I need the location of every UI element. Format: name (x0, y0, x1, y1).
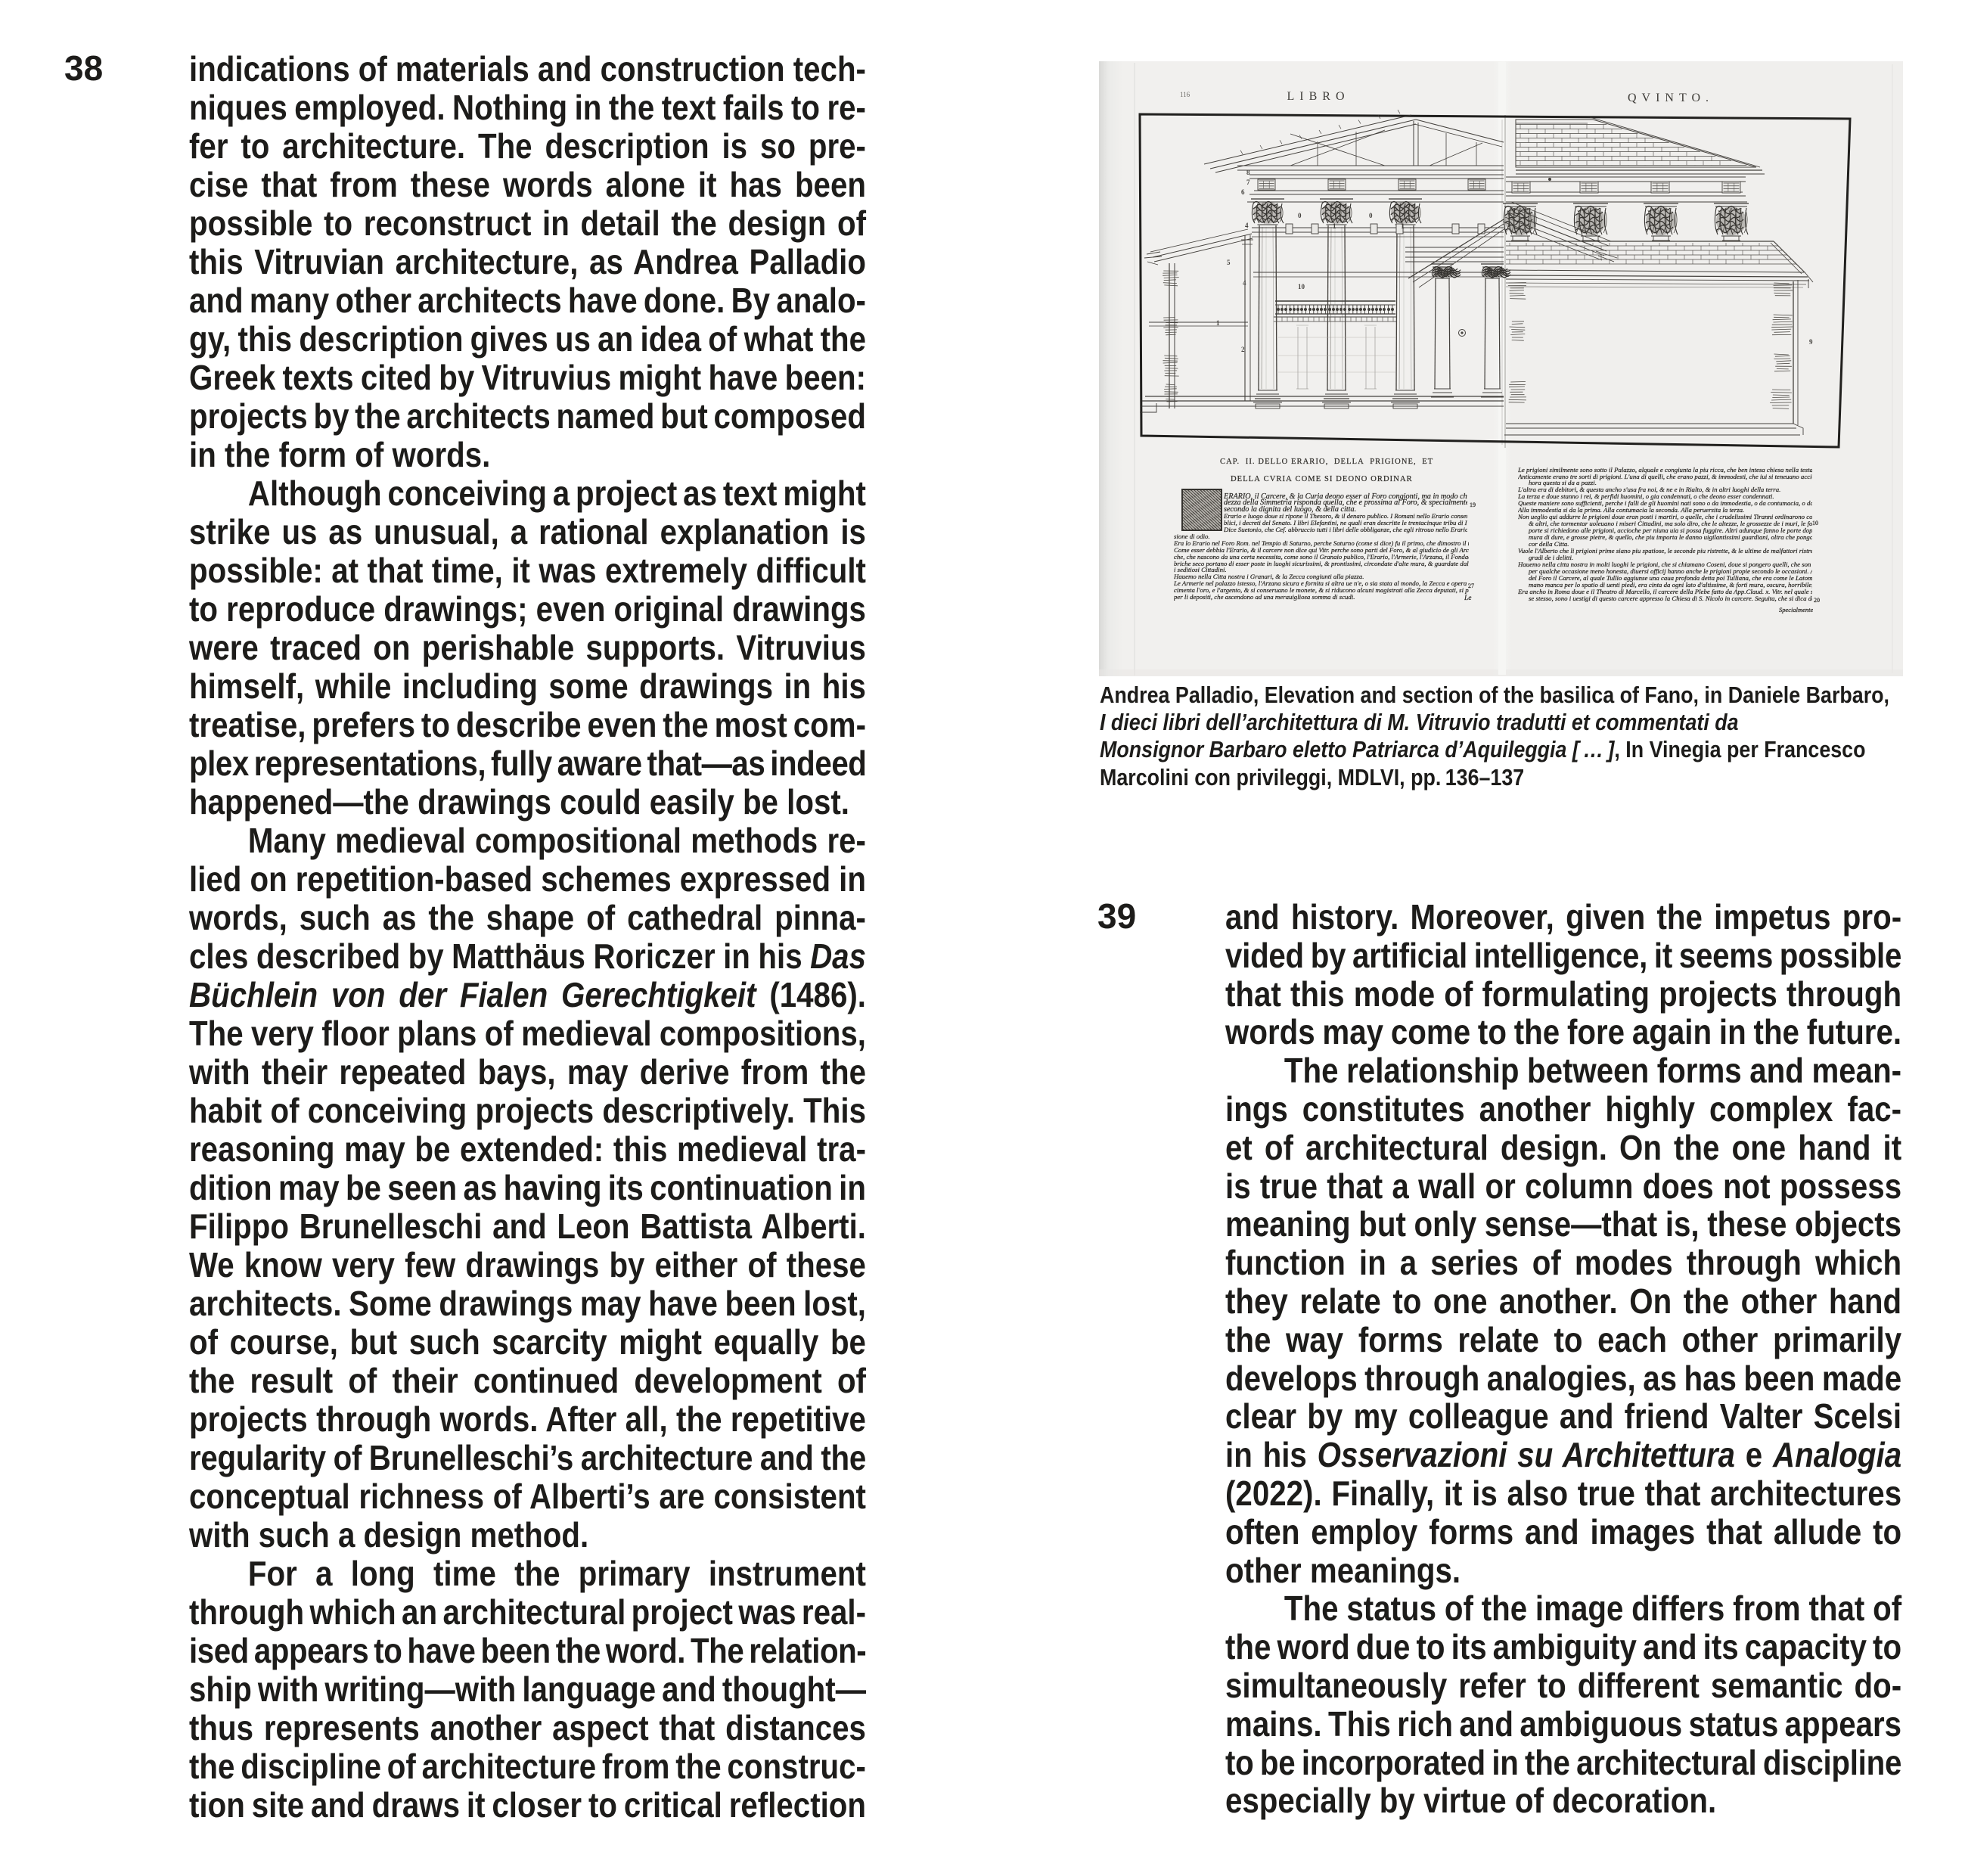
svg-text:5: 5 (1227, 259, 1231, 266)
svg-text:4: 4 (1245, 222, 1249, 229)
svg-text:9: 9 (1809, 338, 1813, 346)
svg-text:8: 8 (1246, 169, 1250, 176)
svg-text:10: 10 (1298, 283, 1305, 290)
svg-text:LIBRO: LIBRO (1287, 90, 1350, 103)
svg-text:1: 1 (1401, 222, 1405, 230)
svg-text:4: 4 (1243, 279, 1246, 287)
svg-text:0: 0 (1298, 212, 1302, 219)
svg-text:QVINTO.: QVINTO. (1628, 92, 1714, 104)
svg-text:2: 2 (1241, 346, 1245, 353)
svg-text:1: 1 (1333, 222, 1336, 230)
svg-text:7: 7 (1246, 179, 1250, 186)
svg-text:6: 6 (1241, 188, 1245, 196)
svg-text:116: 116 (1180, 91, 1190, 98)
svg-text:1: 1 (1216, 319, 1220, 327)
svg-text:0: 0 (1369, 212, 1373, 219)
